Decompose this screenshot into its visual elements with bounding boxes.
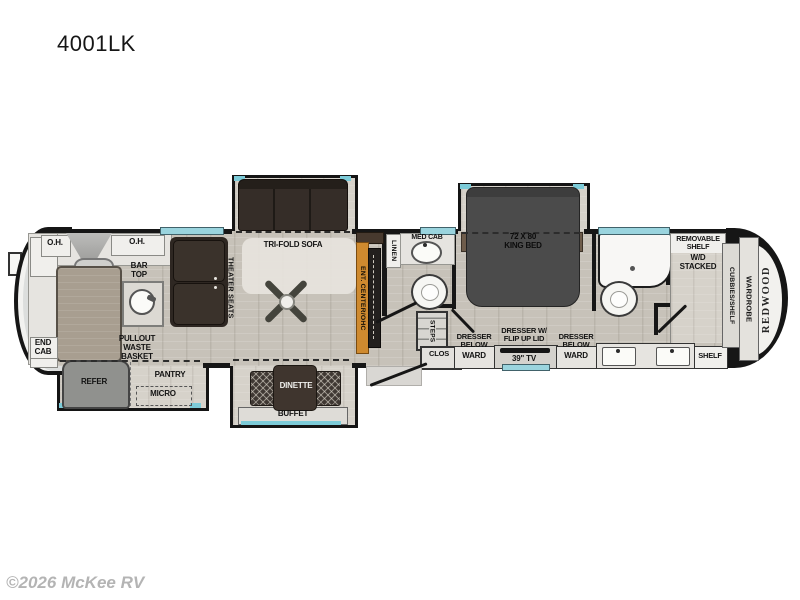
ward-left-label: WARD <box>462 352 486 361</box>
shower <box>598 233 672 288</box>
linen-label: LINEN <box>390 240 397 261</box>
wardrobe-label: WARDROBE <box>745 276 754 322</box>
floorplan: REDWOOD <box>0 0 800 600</box>
faucet <box>616 349 620 353</box>
ward-right-label: WARD <box>564 352 588 361</box>
shower-drain <box>630 266 635 271</box>
dresser-below-right-label: DRESSER BELOW <box>559 333 594 350</box>
end-cab-label: END CAB <box>35 339 52 357</box>
watermark: ©2026 McKee RV <box>6 573 144 593</box>
cupholder <box>214 277 217 280</box>
faucet <box>423 243 427 247</box>
dresser-flip-label: DRESSER W/ FLIP UP LID <box>501 327 547 344</box>
wall <box>592 231 596 311</box>
bar-top-label: BAR TOP <box>131 262 148 280</box>
wd-stacked-label: W/D STACKED <box>680 254 717 272</box>
pantry-divider <box>130 362 131 406</box>
toilet <box>600 281 638 317</box>
pantry-label: PANTRY <box>155 371 186 380</box>
cupholder <box>214 286 217 289</box>
tri-fold-sofa <box>238 179 348 231</box>
tri-fold-sofa-label: TRI-FOLD SOFA <box>264 241 323 250</box>
theater-seats-label-box: THEATER SEATS <box>225 249 237 327</box>
window <box>160 227 224 235</box>
tv-label: 39" TV <box>512 355 536 364</box>
tv-screen-line <box>373 255 374 339</box>
wardrobe-closet: WARDROBE <box>739 237 759 361</box>
clos-label: CLOS <box>429 350 449 358</box>
cubbies-shelf-label: CUBBIES/SHELF <box>728 267 735 324</box>
theater-seats-label: THEATER SEATS <box>227 257 236 318</box>
faucet <box>670 349 674 353</box>
window <box>502 364 550 371</box>
oh-left-label: O.H. <box>47 239 63 248</box>
refer-label: REFER <box>81 378 107 387</box>
brand-redwood: REDWOOD <box>761 266 772 333</box>
end-cab-base <box>30 358 58 368</box>
theater-seat <box>173 283 225 325</box>
med-cab-label: MED CAB <box>411 234 442 242</box>
ceiling-fan <box>258 273 314 329</box>
bar-sink <box>129 289 155 315</box>
toilet <box>411 274 448 310</box>
dinette-label: DINETTE <box>280 382 313 391</box>
tv-panel <box>368 248 381 348</box>
tv-39 <box>500 348 550 353</box>
linen-cabinet: LINEN <box>386 234 401 268</box>
buffet-label: BUFFET <box>278 410 308 419</box>
dresser-below-left-label: DRESSER BELOW <box>457 333 492 350</box>
shelf-label: SHELF <box>698 352 722 360</box>
ent-center-label: ENT. CENTER/OHC <box>359 266 366 331</box>
fan-hub <box>279 294 295 310</box>
screenshot: 4001LK REDWOOD <box>0 0 800 600</box>
removable-shelf-label: REMOVABLE SHELF <box>676 235 720 251</box>
slide-travel-line <box>233 359 349 361</box>
window <box>598 227 670 235</box>
slide-travel-line <box>236 231 350 233</box>
pullout-waste-label: PULLOUT WASTE BASKET <box>119 335 155 361</box>
kitchen-island <box>56 266 122 362</box>
steps-label: STEPS <box>429 320 436 342</box>
oh-right-label: O.H. <box>129 238 145 247</box>
wall <box>203 363 230 368</box>
king-bed-label: 72 X 80 KING BED <box>504 233 542 251</box>
steps: STEPS <box>416 311 448 351</box>
wall <box>352 363 366 368</box>
micro-label: MICRO <box>150 390 176 399</box>
dinette-chair <box>315 371 341 406</box>
theater-seat <box>173 240 225 282</box>
buffet-window <box>241 421 341 425</box>
